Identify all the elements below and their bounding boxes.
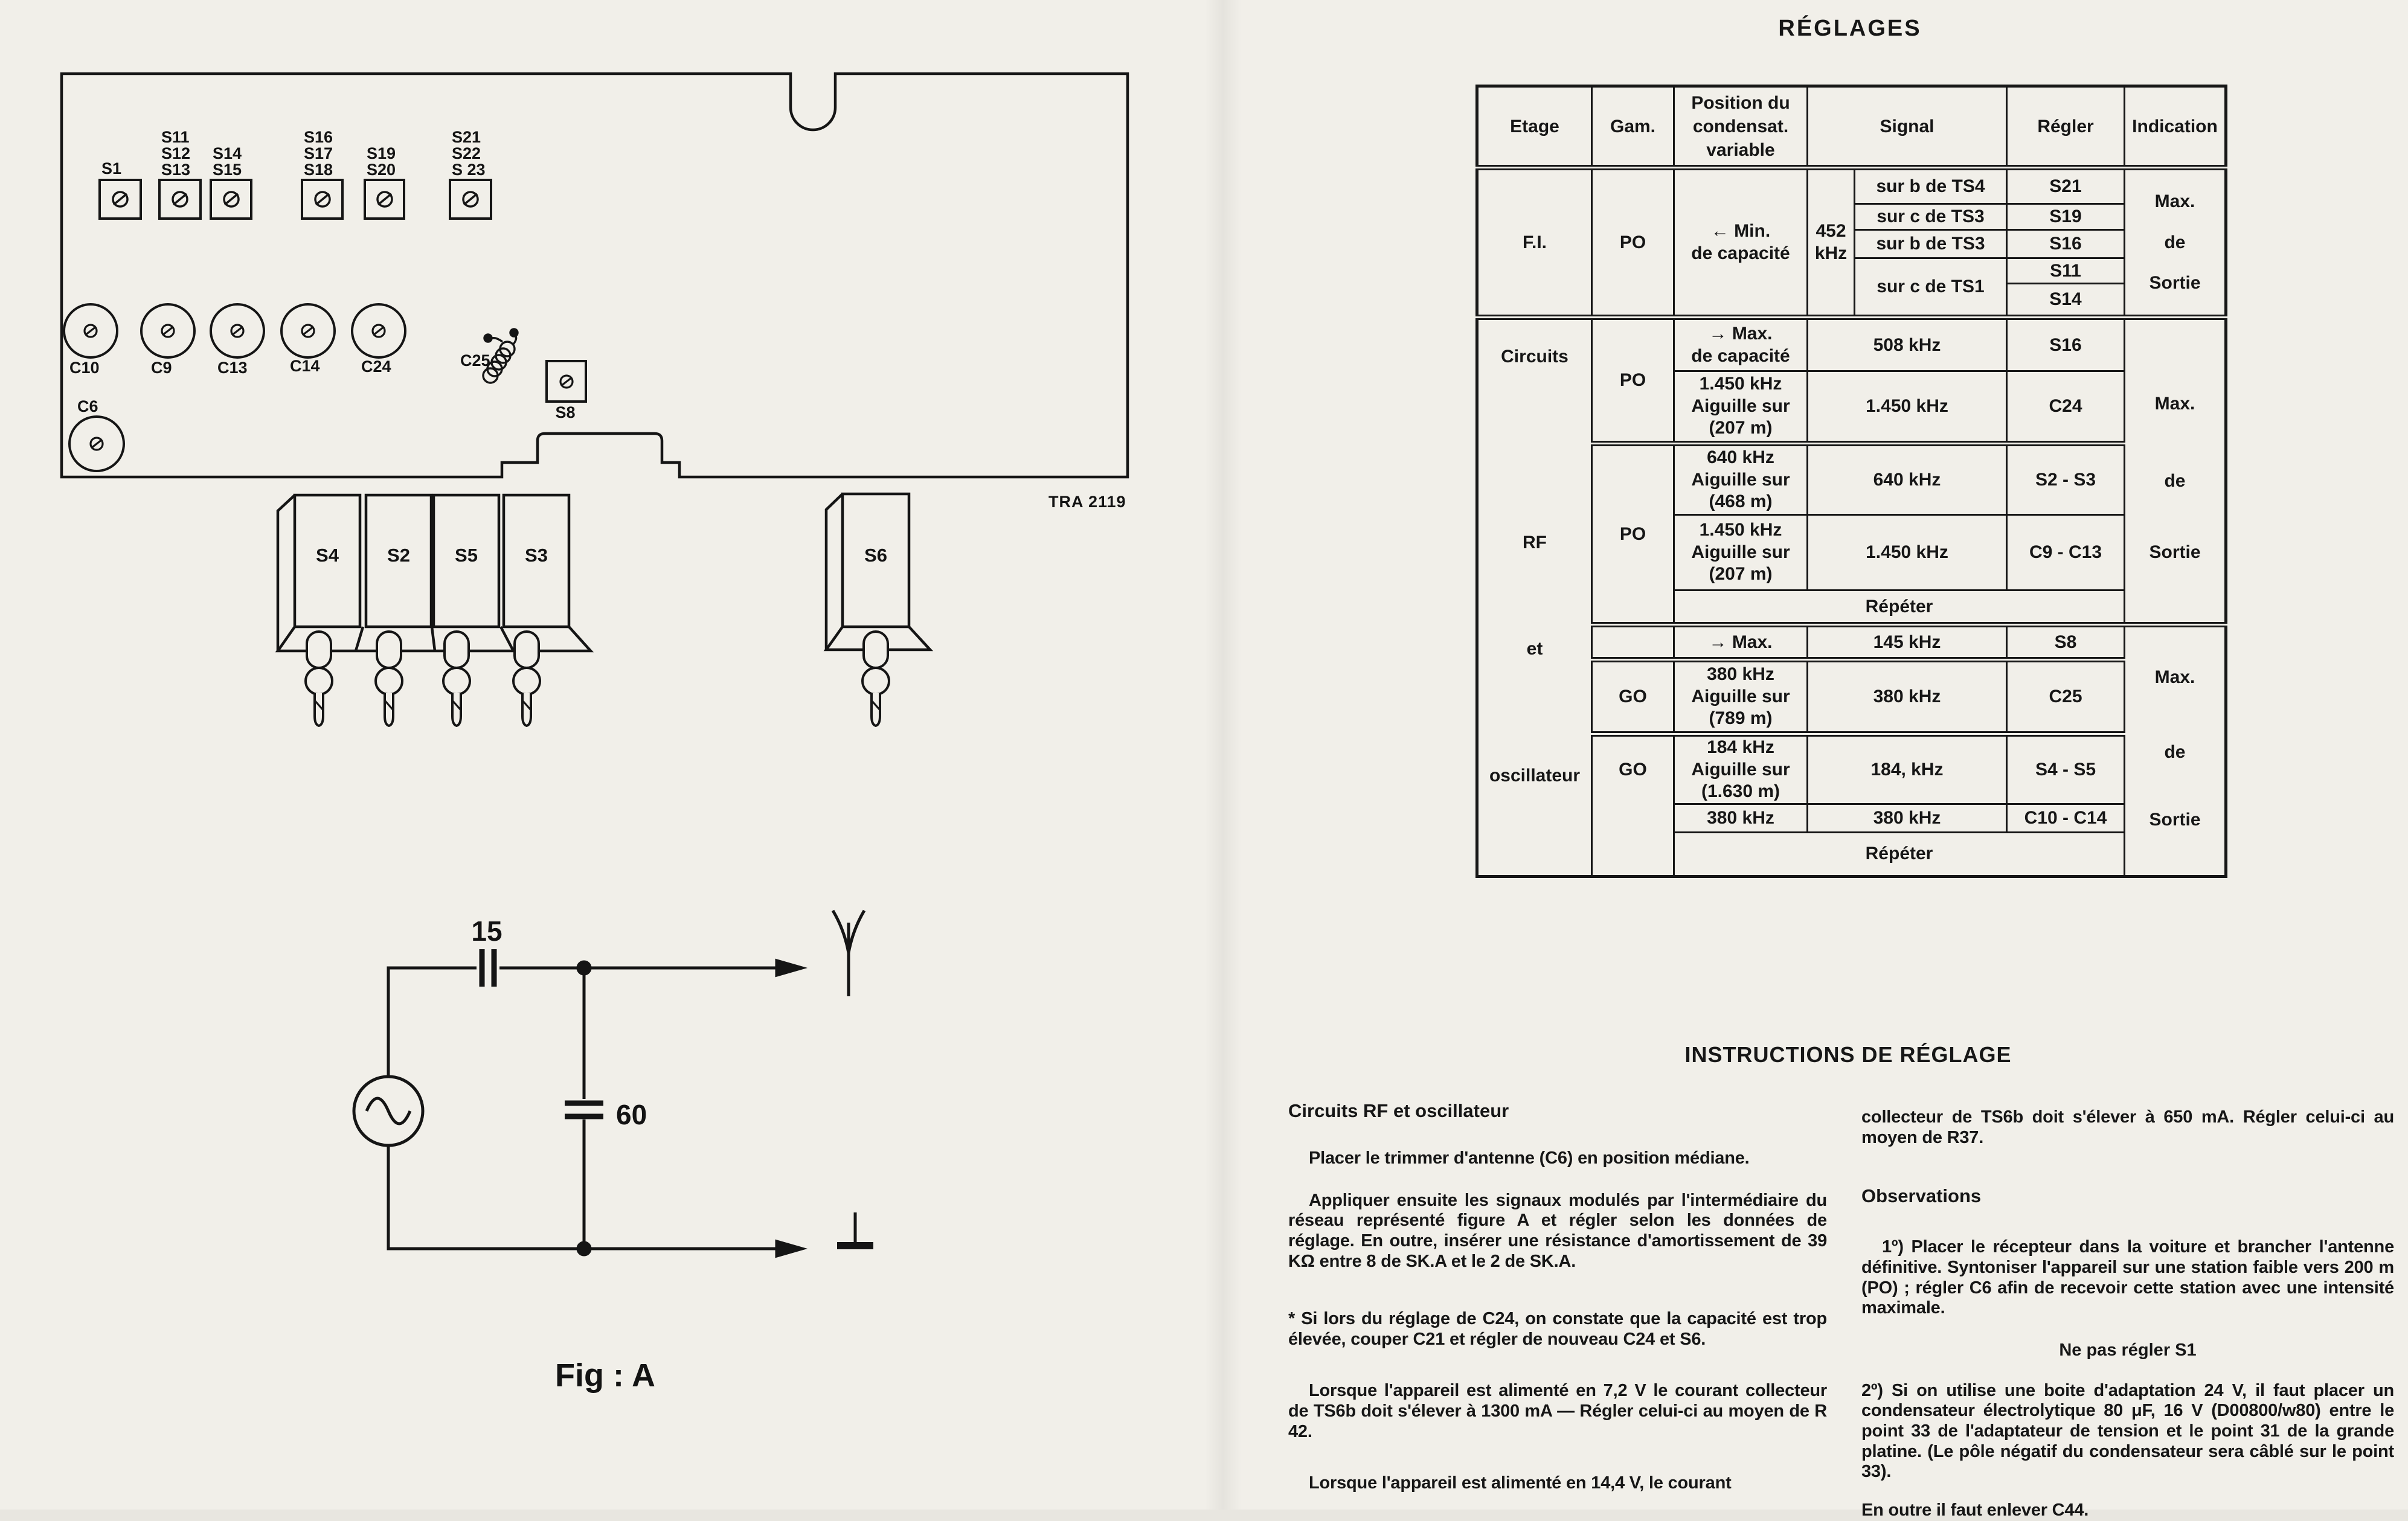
trimmer-square-row xyxy=(100,180,491,219)
paragraph: collecteur de TS6b doit s'élever à 650 m… xyxy=(1861,1107,2394,1148)
cell-indication-fi: Max. de Sortie xyxy=(2125,168,2226,318)
paragraph: Placer le trimmer d'antenne (C6) en posi… xyxy=(1288,1148,1827,1169)
label-coil-s5: S5 xyxy=(455,545,478,566)
label-s19: S19 xyxy=(367,144,396,162)
instructions-right-column: collecteur de TS6b doit s'élever à 650 m… xyxy=(1861,1100,2394,1521)
pin-icon xyxy=(862,632,889,726)
sine-icon xyxy=(367,1098,410,1124)
figure-caption: Fig : A xyxy=(555,1357,655,1394)
label-c14: C14 xyxy=(290,357,320,375)
cell-gam-po2: PO xyxy=(1592,444,1674,625)
paragraph: En outre il faut enlever C44. xyxy=(1861,1500,2394,1521)
cell-indication-mid: Max. de Sortie xyxy=(2125,318,2226,625)
header-regler: Régler xyxy=(2007,86,2125,168)
section-heading-observations: Observations xyxy=(1861,1185,2394,1207)
etage-word-circuits: Circuits xyxy=(1479,347,1591,367)
label-c9: C9 xyxy=(151,359,172,377)
label-s8: S8 xyxy=(555,403,575,421)
indication-word: Sortie xyxy=(2125,542,2224,563)
pin-icon xyxy=(443,632,470,726)
indication-word: de xyxy=(2125,742,2224,763)
cell-freq-452: 452 kHz xyxy=(1808,168,1855,318)
cell-position-380a: 380 kHz Aiguille sur (789 m) xyxy=(1674,660,1808,734)
label-c10: C10 xyxy=(69,359,100,377)
cell-regler-s19: S19 xyxy=(2007,204,2125,230)
table-row: F.I. PO ← Min. de capacité 452 kHz sur b… xyxy=(1477,168,2226,204)
pin-icon-group xyxy=(306,632,889,726)
arrow-icon xyxy=(777,961,802,975)
cell-regler-s2s3: S2 - S3 xyxy=(2007,444,2125,515)
part-number: TRA 2119 xyxy=(1048,493,1126,511)
label-s1: S1 xyxy=(101,159,121,178)
cell-position-1450b: 1.450 kHz Aiguille sur (207 m) xyxy=(1674,515,1808,591)
indication-word: Max. xyxy=(2125,394,2224,414)
antenna-icon xyxy=(833,911,864,996)
pin-icon xyxy=(513,632,540,726)
cell-repeat-1: Répéter xyxy=(1674,591,2125,625)
label-coil-s3: S3 xyxy=(525,545,548,566)
indication-word: de xyxy=(2125,471,2224,492)
screw-icon-set-squares xyxy=(113,192,478,207)
cell-signal-508: 508 kHz xyxy=(1808,318,2007,371)
label-s20: S20 xyxy=(367,161,396,179)
cell-repeat-2: Répéter xyxy=(1674,832,2125,876)
table-header-row: Etage Gam. Position du condensat. variab… xyxy=(1477,86,2226,168)
page-title: RÉGLAGES xyxy=(1475,16,2224,42)
cell-regler-s4s5: S4 - S5 xyxy=(2007,734,2125,804)
label-s14: S14 xyxy=(213,144,242,162)
header-indication: Indication xyxy=(2125,86,2226,168)
header-gam: Gam. xyxy=(1592,86,1674,168)
cell-position-fi: ← Min. de capacité xyxy=(1674,168,1808,318)
paragraph: Lorsque l'appareil est alimenté en 14,4 … xyxy=(1288,1473,1827,1494)
alignment-table: Etage Gam. Position du condensat. variab… xyxy=(1475,85,2227,878)
cell-regler-c10c14: C10 - C14 xyxy=(2007,804,2125,832)
label-s16: S16 xyxy=(304,128,333,146)
cell-regler-s8: S8 xyxy=(2007,625,2125,660)
cell-position-184: 184 kHz Aiguille sur (1.630 m) xyxy=(1674,734,1808,804)
label-c24: C24 xyxy=(361,357,391,376)
instructions-left-column: Circuits RF et oscillateur Placer le tri… xyxy=(1288,1100,1827,1494)
cell-regler-s16: S16 xyxy=(2007,230,2125,258)
figure-a-schematic xyxy=(354,911,873,1256)
cell-signal-184: 184, kHz xyxy=(1808,734,2007,804)
paragraph: 2º) Si on utilise une boite d'adaptation… xyxy=(1861,1381,2394,1482)
junction-dot xyxy=(578,1243,590,1255)
cell-position-640: 640 kHz Aiguille sur (468 m) xyxy=(1674,444,1808,515)
cell-regler-s14: S14 xyxy=(2007,284,2125,318)
label-s18: S18 xyxy=(304,161,333,179)
paragraph: Lorsque l'appareil est alimenté en 7,2 V… xyxy=(1288,1381,1827,1442)
cell-gam-go1: GO xyxy=(1592,660,1674,734)
cell-signal-ts4: sur b de TS4 xyxy=(1855,168,2007,204)
pin-icon xyxy=(376,632,402,726)
manual-page: S1 S11 S12 S13 S14 S15 S16 S17 S18 S19 S… xyxy=(0,0,2408,1510)
pcb-board-outline xyxy=(62,74,1128,477)
cell-signal-bts3: sur b de TS3 xyxy=(1855,230,2007,258)
header-position: Position du condensat. variable xyxy=(1674,86,1808,168)
ground-icon xyxy=(837,1212,873,1246)
figure-series-cap-value: 15 xyxy=(471,915,502,947)
section-heading-rf: Circuits RF et oscillateur xyxy=(1288,1100,1827,1122)
arrow-icon xyxy=(777,1241,802,1256)
label-s15: S15 xyxy=(213,161,242,179)
label-coil-s6: S6 xyxy=(864,545,887,566)
etage-word-oscillateur: oscillateur xyxy=(1479,766,1591,786)
screw-icon-set-circles xyxy=(85,325,385,337)
figure-shunt-cap-value: 60 xyxy=(616,1099,647,1130)
c6-trimmer-circle xyxy=(69,417,124,471)
cell-signal-145: 145 kHz xyxy=(1808,625,2007,660)
cell-regler-c24: C24 xyxy=(2007,371,2125,444)
etage-word-et: et xyxy=(1479,639,1591,659)
cell-gam-empty xyxy=(1592,625,1674,660)
indication-word: Max. xyxy=(2125,667,2224,688)
label-s13: S13 xyxy=(161,161,190,179)
label-coil-s4: S4 xyxy=(316,545,339,566)
label-s23: S 23 xyxy=(452,161,486,179)
label-s12: S12 xyxy=(161,144,190,162)
cell-signal-640: 640 kHz xyxy=(1808,444,2007,515)
label-s21: S21 xyxy=(452,128,481,146)
cell-signal-380a: 380 kHz xyxy=(1808,660,2007,734)
label-c13: C13 xyxy=(217,359,248,377)
cell-signal-cts1: sur c de TS1 xyxy=(1855,258,2007,318)
cell-gam-go2: GO xyxy=(1592,734,1674,877)
header-signal: Signal xyxy=(1808,86,2007,168)
cell-etage-lower: Circuits RF et oscillateur xyxy=(1477,318,1592,877)
cell-regler-c25: C25 xyxy=(2007,660,2125,734)
etage-word-rf: RF xyxy=(1479,533,1591,553)
pcb-and-schematic-diagram: S1 S11 S12 S13 S14 S15 S16 S17 S18 S19 S… xyxy=(0,0,1208,1510)
cell-signal-1450a: 1.450 kHz xyxy=(1808,371,2007,444)
paragraph: 1º) Placer le récepteur dans la voiture … xyxy=(1861,1237,2394,1319)
cell-position-1450a: 1.450 kHz Aiguille sur (207 m) xyxy=(1674,371,1808,444)
label-s17: S17 xyxy=(304,144,333,162)
label-s11: S11 xyxy=(161,128,190,146)
cell-position-145: → Max. xyxy=(1674,625,1808,660)
page-gutter-shadow xyxy=(1205,0,1241,1510)
indication-word: Sortie xyxy=(2125,810,2224,830)
note-ne-pas-regler: Ne pas régler S1 xyxy=(1861,1340,2394,1360)
junction-dot xyxy=(578,962,590,974)
cell-regler-c9c13: C9 - C13 xyxy=(2007,515,2125,591)
cell-signal-1450b: 1.450 kHz xyxy=(1808,515,2007,591)
cell-signal-380b: 380 kHz xyxy=(1808,804,2007,832)
capacitor-circle-row xyxy=(64,304,405,357)
label-c6: C6 xyxy=(77,397,98,415)
header-etage: Etage xyxy=(1477,86,1592,168)
label-s22: S22 xyxy=(452,144,481,162)
cell-position-380b: 380 kHz xyxy=(1674,804,1808,832)
cell-position-508: → Max. de capacité xyxy=(1674,318,1808,371)
cell-regler-s11: S11 xyxy=(2007,258,2125,284)
cell-indication-bot: Max. de Sortie xyxy=(2125,625,2226,877)
coil-box-group xyxy=(278,495,591,651)
cell-gam-fi: PO xyxy=(1592,168,1674,318)
cell-gam-po1: PO xyxy=(1592,318,1674,444)
table-row: Circuits RF et oscillateur PO → Max. de … xyxy=(1477,318,2226,371)
cell-etage-fi: F.I. xyxy=(1477,168,1592,318)
cell-signal-cts3: sur c de TS3 xyxy=(1855,204,2007,230)
label-coil-s2: S2 xyxy=(387,545,410,566)
paragraph: Appliquer ensuite les signaux modulés pa… xyxy=(1288,1191,1827,1272)
instructions-title: INSTRUCTIONS DE RÉGLAGE xyxy=(1286,1042,2408,1068)
paragraph-footnote: * Si lors du réglage de C24, on constate… xyxy=(1288,1309,1827,1350)
cell-regler-s21: S21 xyxy=(2007,168,2125,204)
pin-icon xyxy=(306,632,332,726)
s6-box xyxy=(826,494,930,650)
cell-regler-s16b: S16 xyxy=(2007,318,2125,371)
s8-square xyxy=(547,361,586,402)
label-c25: C25 xyxy=(460,351,490,370)
